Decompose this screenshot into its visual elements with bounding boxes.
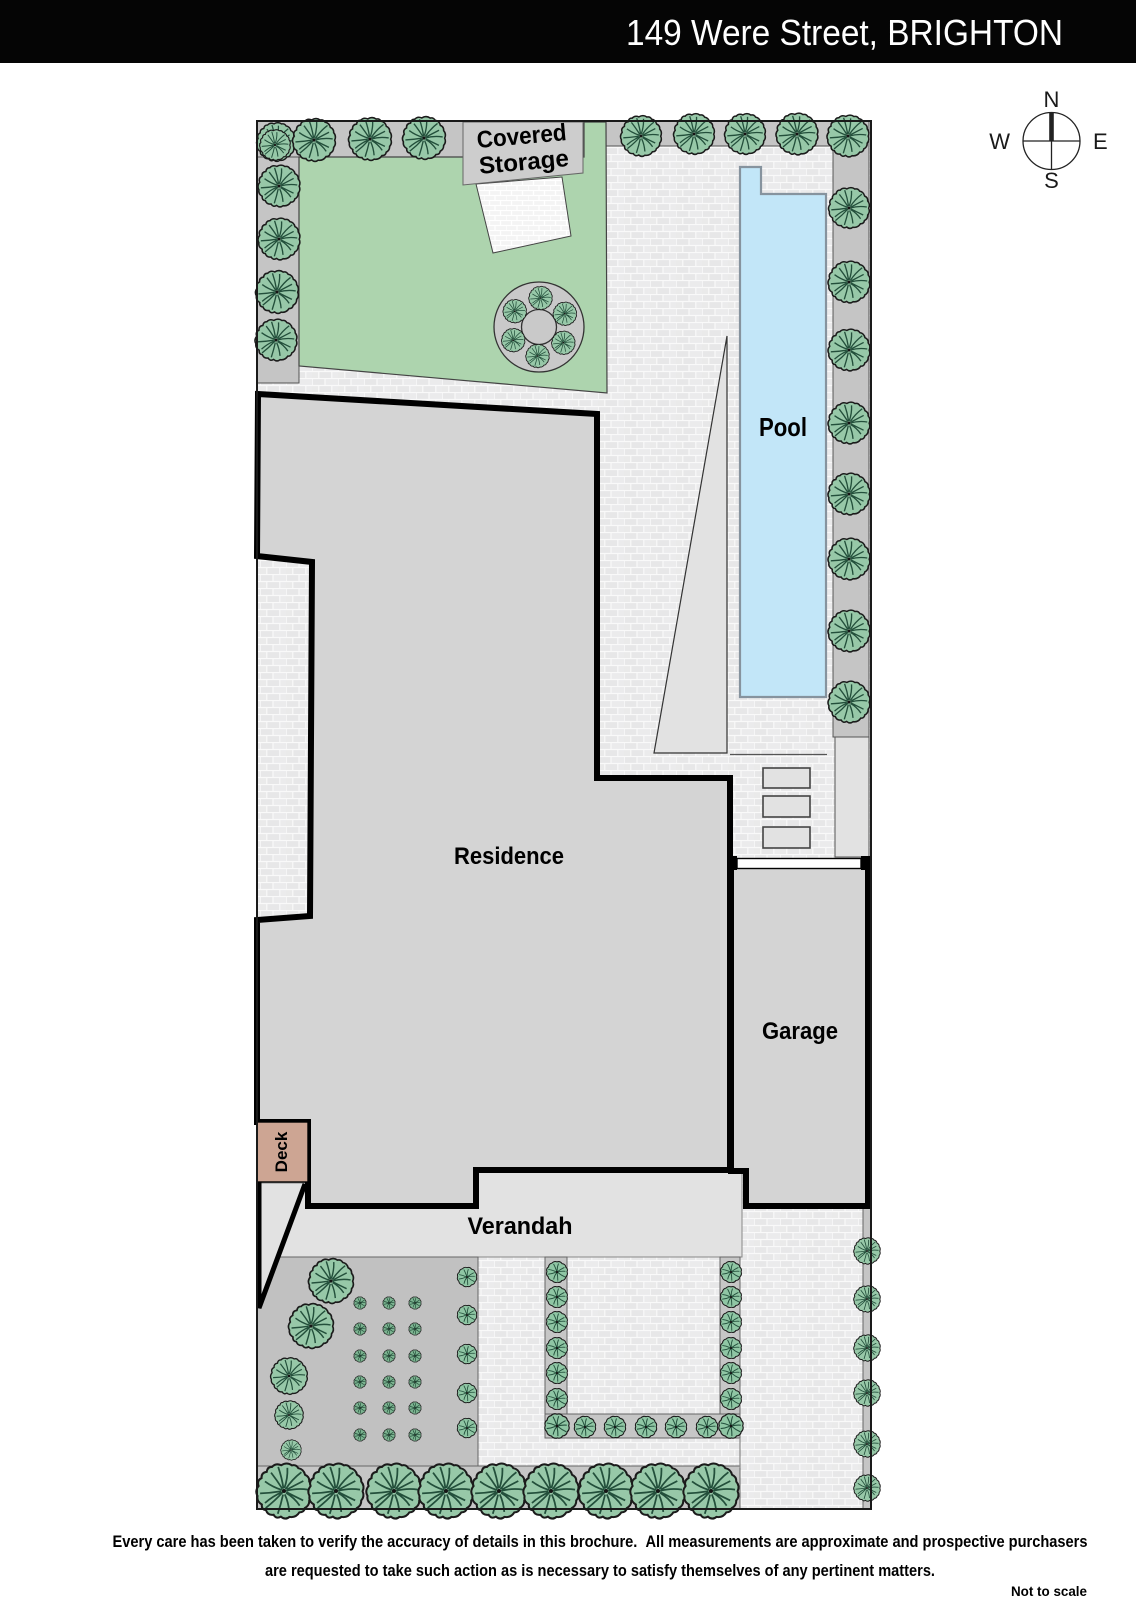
svg-text:E: E — [1093, 129, 1108, 154]
svg-text:Pool: Pool — [759, 412, 807, 442]
svg-text:W: W — [989, 129, 1010, 154]
svg-text:N: N — [1044, 87, 1060, 112]
svg-text:149 Were Street, BRIGHTON: 149 Were Street, BRIGHTON — [626, 12, 1063, 53]
svg-text:Deck: Deck — [272, 1131, 291, 1172]
svg-text:S: S — [1044, 168, 1059, 193]
svg-text:Every care has been taken to v: Every care has been taken to verify the … — [113, 1532, 1088, 1551]
svg-text:Verandah: Verandah — [468, 1213, 573, 1240]
svg-text:are requested to take such act: are requested to take such action as is … — [265, 1561, 935, 1580]
svg-text:Not to scale: Not to scale — [1011, 1583, 1087, 1599]
svg-text:Residence: Residence — [454, 843, 564, 870]
svg-text:Garage: Garage — [762, 1018, 838, 1045]
